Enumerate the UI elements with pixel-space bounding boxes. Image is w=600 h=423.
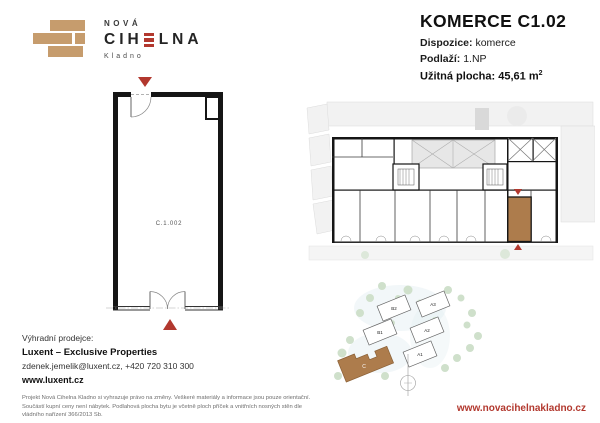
highlighted-unit [508,197,531,242]
building-floor-plan [305,100,595,265]
building-label: C [362,364,366,370]
building-label: A3 [430,302,436,307]
project-website: www.novacihelnakladno.cz [457,403,586,414]
podlazi-value: 1.NP [463,53,486,65]
seller-heading: Výhradní prodejce: [22,333,194,343]
podlazi-label: Podlaží: [420,53,460,65]
seller-website: www.luxent.cz [22,375,194,385]
dispozice-line: Dispozice: komerce [420,37,596,49]
building-label: A1 [417,352,423,357]
dispozice-value: komerce [475,37,515,49]
storefront-glazing [106,307,230,311]
brick-shape [33,33,72,44]
area-sup: 2 [539,70,543,77]
brick-shape [50,20,85,31]
logo-cihelna-right: LNA [159,31,203,49]
logo-city-text: Kladno [104,53,203,60]
logo-nova-text: NOVÁ [104,19,203,28]
brick-shape [75,33,85,44]
stair-core [393,164,419,190]
area-value: 45,61 m [498,70,538,82]
disclaimer-text: Projekt Nová Cihelna Kladno si vyhrazuje… [22,394,314,420]
entry-door [131,95,151,118]
logo-cihelna-text: CIH LNA [104,31,203,49]
logo-cihelna-left: CIH [104,31,143,49]
brick-shape [48,46,83,57]
brochure-page: NOVÁ CIH LNA Kladno KOMERCE C1.02 Dispoz… [0,0,600,423]
seller-contact: zdenek.jemelik@luxent.cz, +420 720 310 3… [22,361,194,371]
podlazi-line: Podlaží: 1.NP [420,53,596,65]
logo: NOVÁ CIH LNA Kladno [104,19,203,60]
area-line: Užitná plocha: 45,61 m2 [420,70,596,83]
brick-logo-icon [33,15,87,57]
unit-label: C.1.002 [156,221,183,227]
shaft-detail [206,97,219,119]
building-label: A2 [424,328,430,333]
page-title: KOMERCE C1.02 [420,11,596,32]
seller-block: Výhradní prodejce: Luxent – Exclusive Pr… [22,333,194,385]
entrance-marker-icon [138,77,152,87]
floor-plan-walls [113,92,223,310]
stair-core [483,164,507,190]
seller-name: Luxent – Exclusive Properties [22,347,194,358]
brick-e-icon [144,33,154,47]
unit-header: KOMERCE C1.02 Dispozice: komerce Podlaží… [420,11,596,82]
dispozice-label: Dispozice: [420,37,473,49]
double-door [150,292,185,310]
site-plan: B2 B1 A3 A2 A1 C [330,268,495,403]
area-label: Užitná plocha: [420,70,495,82]
building-label: B2 [391,306,397,311]
building-label: B1 [377,330,383,335]
entrance-marker-icon [163,319,177,330]
unit-floor-plan: C.1.002 [88,72,238,342]
